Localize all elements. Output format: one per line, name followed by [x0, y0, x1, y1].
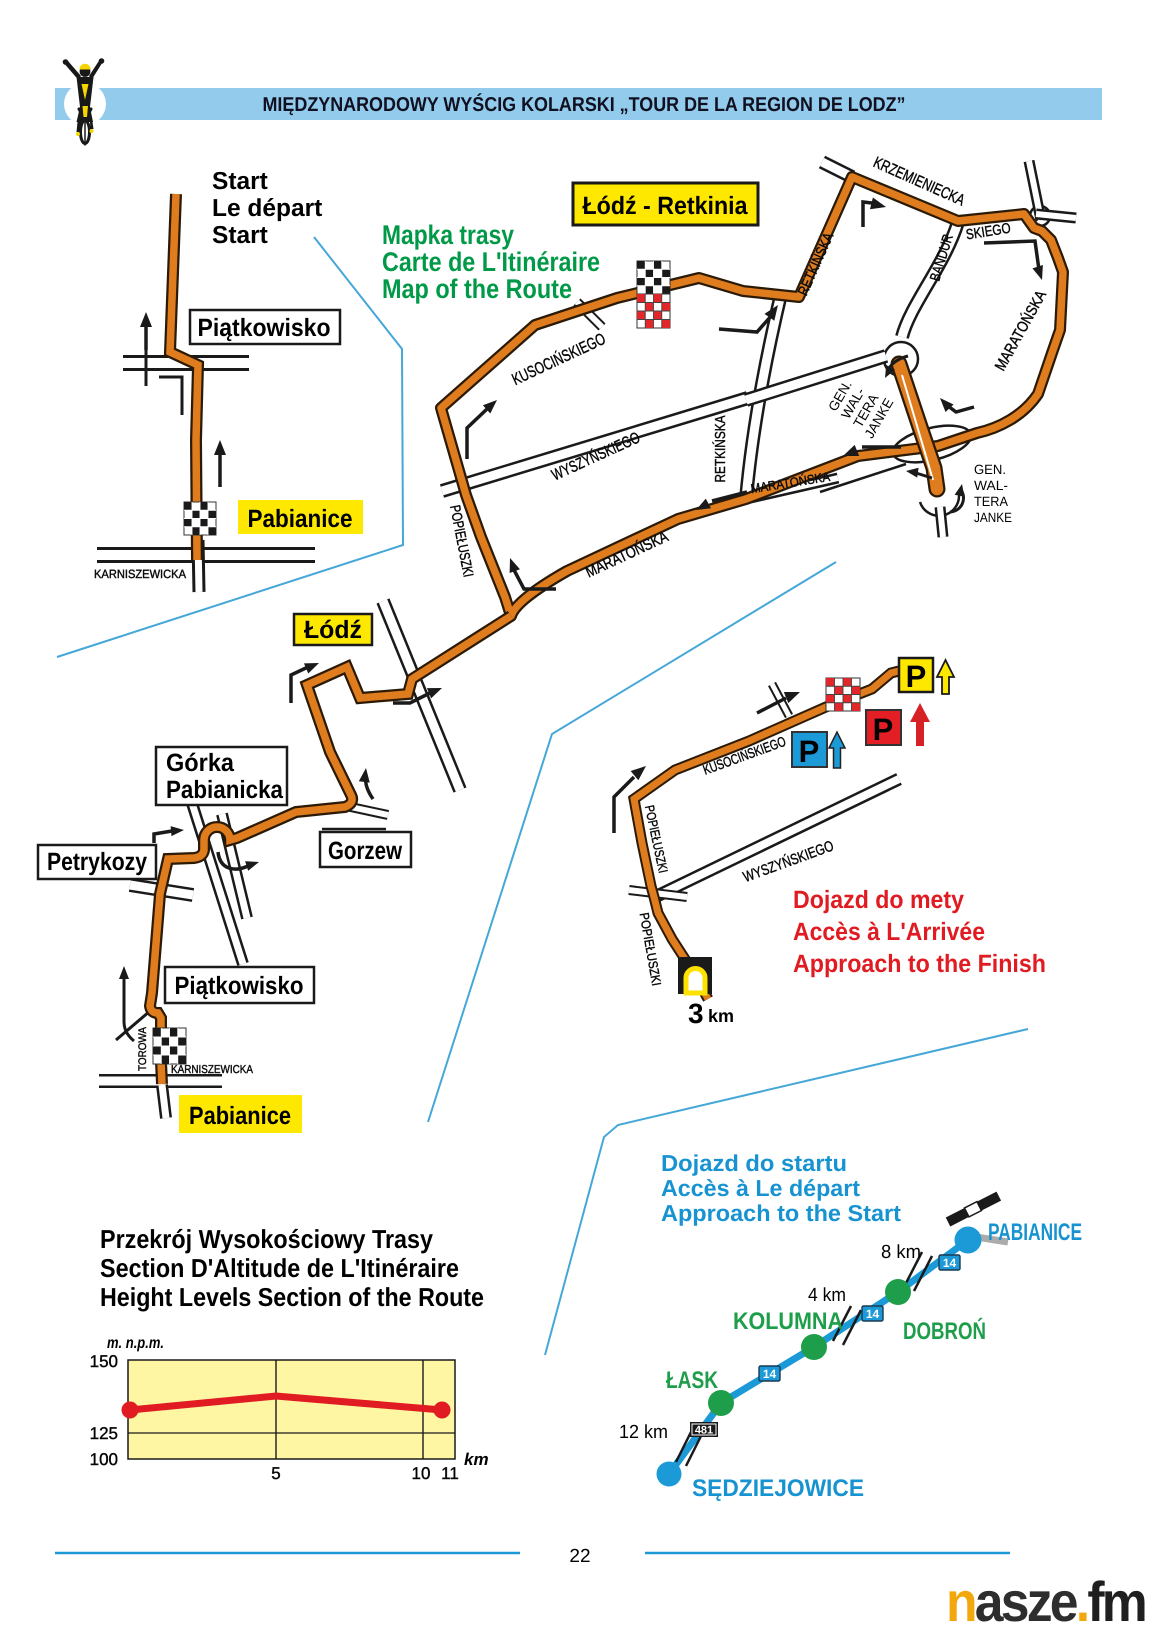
svg-text:RETKIŃSKA: RETKIŃSKA: [712, 415, 729, 482]
svg-text:Petrykozy: Petrykozy: [47, 848, 147, 876]
svg-text:Mapka trasy: Mapka trasy: [382, 220, 514, 250]
svg-text:Dojazd do mety: Dojazd do mety: [793, 886, 964, 914]
svg-text:5: 5: [271, 1464, 280, 1483]
svg-text:Carte de L'Itinéraire: Carte de L'Itinéraire: [382, 247, 600, 277]
svg-text:P: P: [906, 659, 927, 694]
svg-text:GEN.: GEN.: [974, 462, 1006, 477]
svg-text:14: 14: [866, 1307, 880, 1321]
svg-text:11: 11: [441, 1464, 459, 1483]
svg-text:Approach to the Start: Approach to the Start: [661, 1200, 901, 1226]
svg-text:Dojazd do startu: Dojazd do startu: [661, 1150, 847, 1176]
svg-text:481: 481: [695, 1425, 713, 1437]
svg-text:km: km: [464, 1450, 489, 1469]
svg-text:SĘDZIEJOWICE: SĘDZIEJOWICE: [692, 1475, 864, 1502]
svg-text:TOROWA: TOROWA: [137, 1026, 149, 1071]
svg-text:KARNISZEWICKA: KARNISZEWICKA: [94, 567, 186, 581]
svg-text:WAL-: WAL-: [974, 478, 1008, 493]
svg-text:12 km: 12 km: [619, 1422, 668, 1443]
svg-text:Pabianice: Pabianice: [248, 505, 353, 533]
svg-text:3: 3: [688, 998, 704, 1029]
svg-text:KOLUMNA: KOLUMNA: [733, 1308, 843, 1335]
svg-text:125: 125: [90, 1424, 118, 1443]
svg-text:TERA: TERA: [974, 494, 1008, 509]
svg-text:KARNISZEWICKA: KARNISZEWICKA: [171, 1064, 253, 1076]
svg-text:Przekrój Wysokościowy Trasy: Przekrój Wysokościowy Trasy: [100, 1224, 433, 1254]
svg-text:Start: Start: [212, 168, 268, 195]
svg-text:100: 100: [90, 1450, 118, 1469]
svg-text:10: 10: [412, 1464, 431, 1483]
svg-text:Piątkowisko: Piątkowisko: [198, 314, 331, 342]
svg-text:14: 14: [943, 1256, 957, 1270]
svg-text:Pabianicka: Pabianicka: [166, 776, 284, 804]
svg-text:P: P: [873, 712, 894, 747]
svg-text:JANKE: JANKE: [974, 510, 1012, 525]
svg-text:Łódź - Retkinia: Łódź - Retkinia: [583, 192, 749, 220]
svg-text:Accès à Le départ: Accès à Le départ: [661, 1175, 860, 1201]
svg-text:Pabianice: Pabianice: [189, 1102, 291, 1130]
svg-text:nasze.fm: nasze.fm: [946, 1570, 1145, 1633]
svg-text:Gorzew: Gorzew: [328, 837, 402, 865]
svg-text:150: 150: [90, 1352, 118, 1371]
svg-text:Height Levels Section of the R: Height Levels Section of the Route: [100, 1282, 484, 1312]
svg-text:Start: Start: [212, 222, 268, 249]
svg-text:22: 22: [569, 1546, 590, 1567]
svg-text:m. n.p.m.: m. n.p.m.: [107, 1335, 164, 1352]
svg-text:Le départ: Le départ: [212, 195, 322, 222]
svg-text:Accès à L'Arrivée: Accès à L'Arrivée: [793, 918, 985, 946]
svg-text:DOBROŃ: DOBROŃ: [903, 1317, 986, 1345]
svg-text:km: km: [708, 1006, 734, 1026]
svg-text:PABIANICE: PABIANICE: [988, 1219, 1082, 1246]
svg-text:Łódź: Łódź: [304, 616, 362, 644]
svg-text:ŁASK: ŁASK: [666, 1367, 719, 1394]
svg-text:Górka: Górka: [166, 749, 235, 777]
svg-text:Map of the Route: Map of the Route: [382, 274, 572, 304]
svg-text:8 km: 8 km: [881, 1242, 921, 1263]
svg-text:MIĘDZYNARODOWY WYŚCIG KOLARSKI: MIĘDZYNARODOWY WYŚCIG KOLARSKI „TOUR DE …: [263, 93, 906, 116]
svg-text:4 km: 4 km: [808, 1285, 846, 1306]
svg-text:Section D'Altitude de L'Itinér: Section D'Altitude de L'Itinéraire: [100, 1253, 459, 1283]
svg-text:14: 14: [763, 1367, 777, 1381]
svg-text:Piątkowisko: Piątkowisko: [175, 972, 304, 1000]
svg-text:Approach to the Finish: Approach to the Finish: [793, 950, 1046, 978]
svg-text:P: P: [799, 734, 820, 769]
